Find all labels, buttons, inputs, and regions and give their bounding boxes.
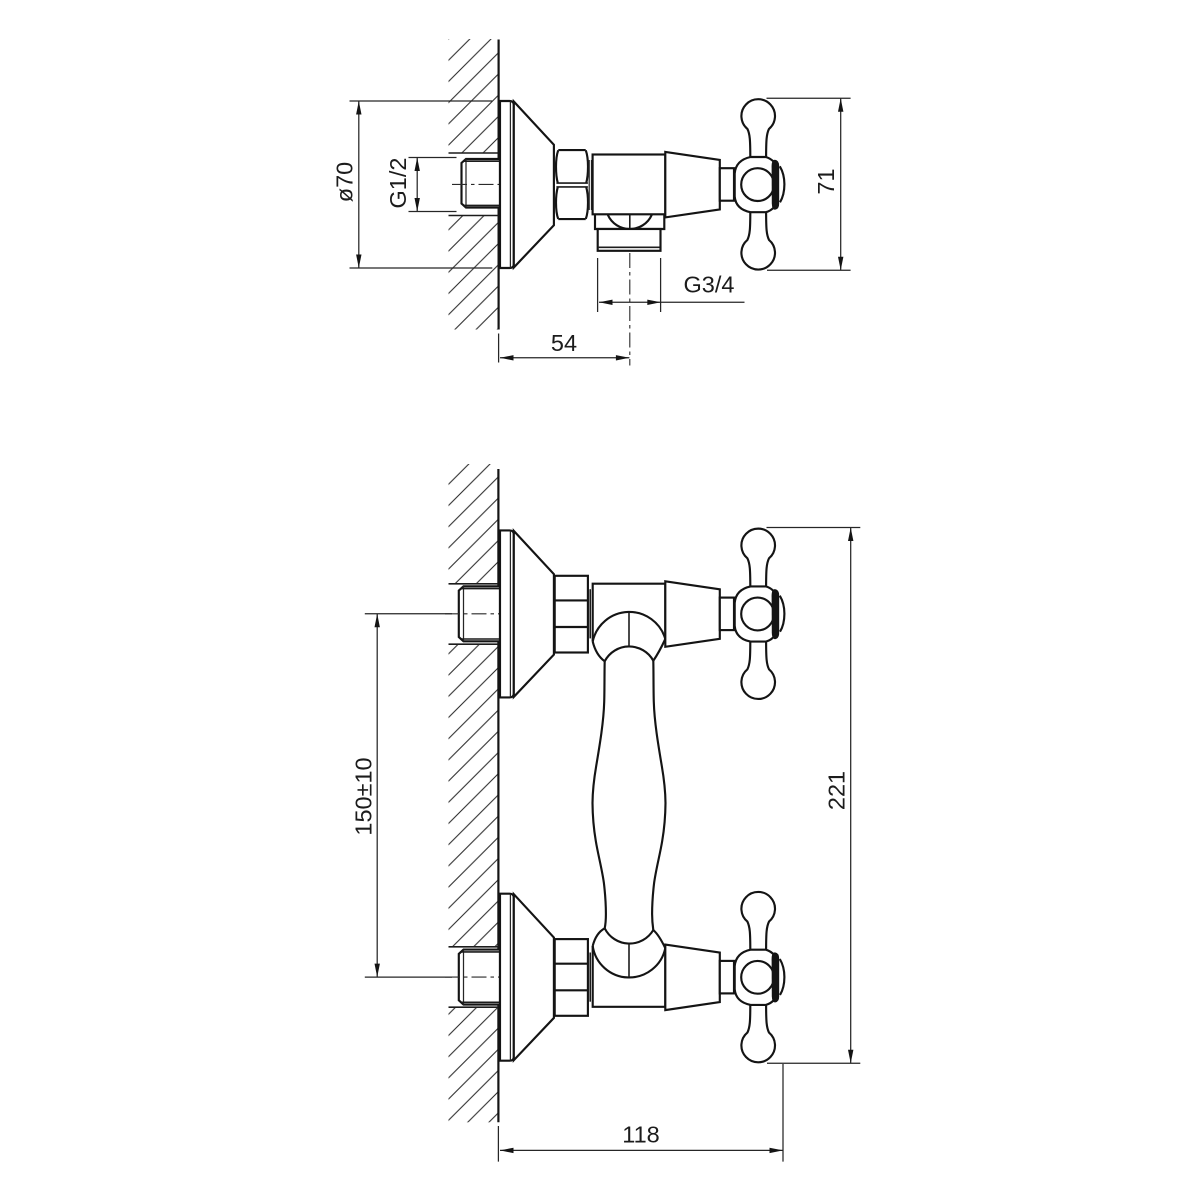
svg-text:221: 221 — [824, 771, 850, 810]
svg-text:150±10: 150±10 — [351, 757, 377, 835]
svg-text:71: 71 — [813, 168, 839, 194]
svg-text:ø70: ø70 — [332, 162, 358, 203]
svg-text:G1/2: G1/2 — [385, 158, 411, 209]
svg-text:54: 54 — [551, 330, 577, 356]
svg-text:118: 118 — [622, 1122, 659, 1148]
svg-text:G3/4: G3/4 — [684, 271, 735, 297]
